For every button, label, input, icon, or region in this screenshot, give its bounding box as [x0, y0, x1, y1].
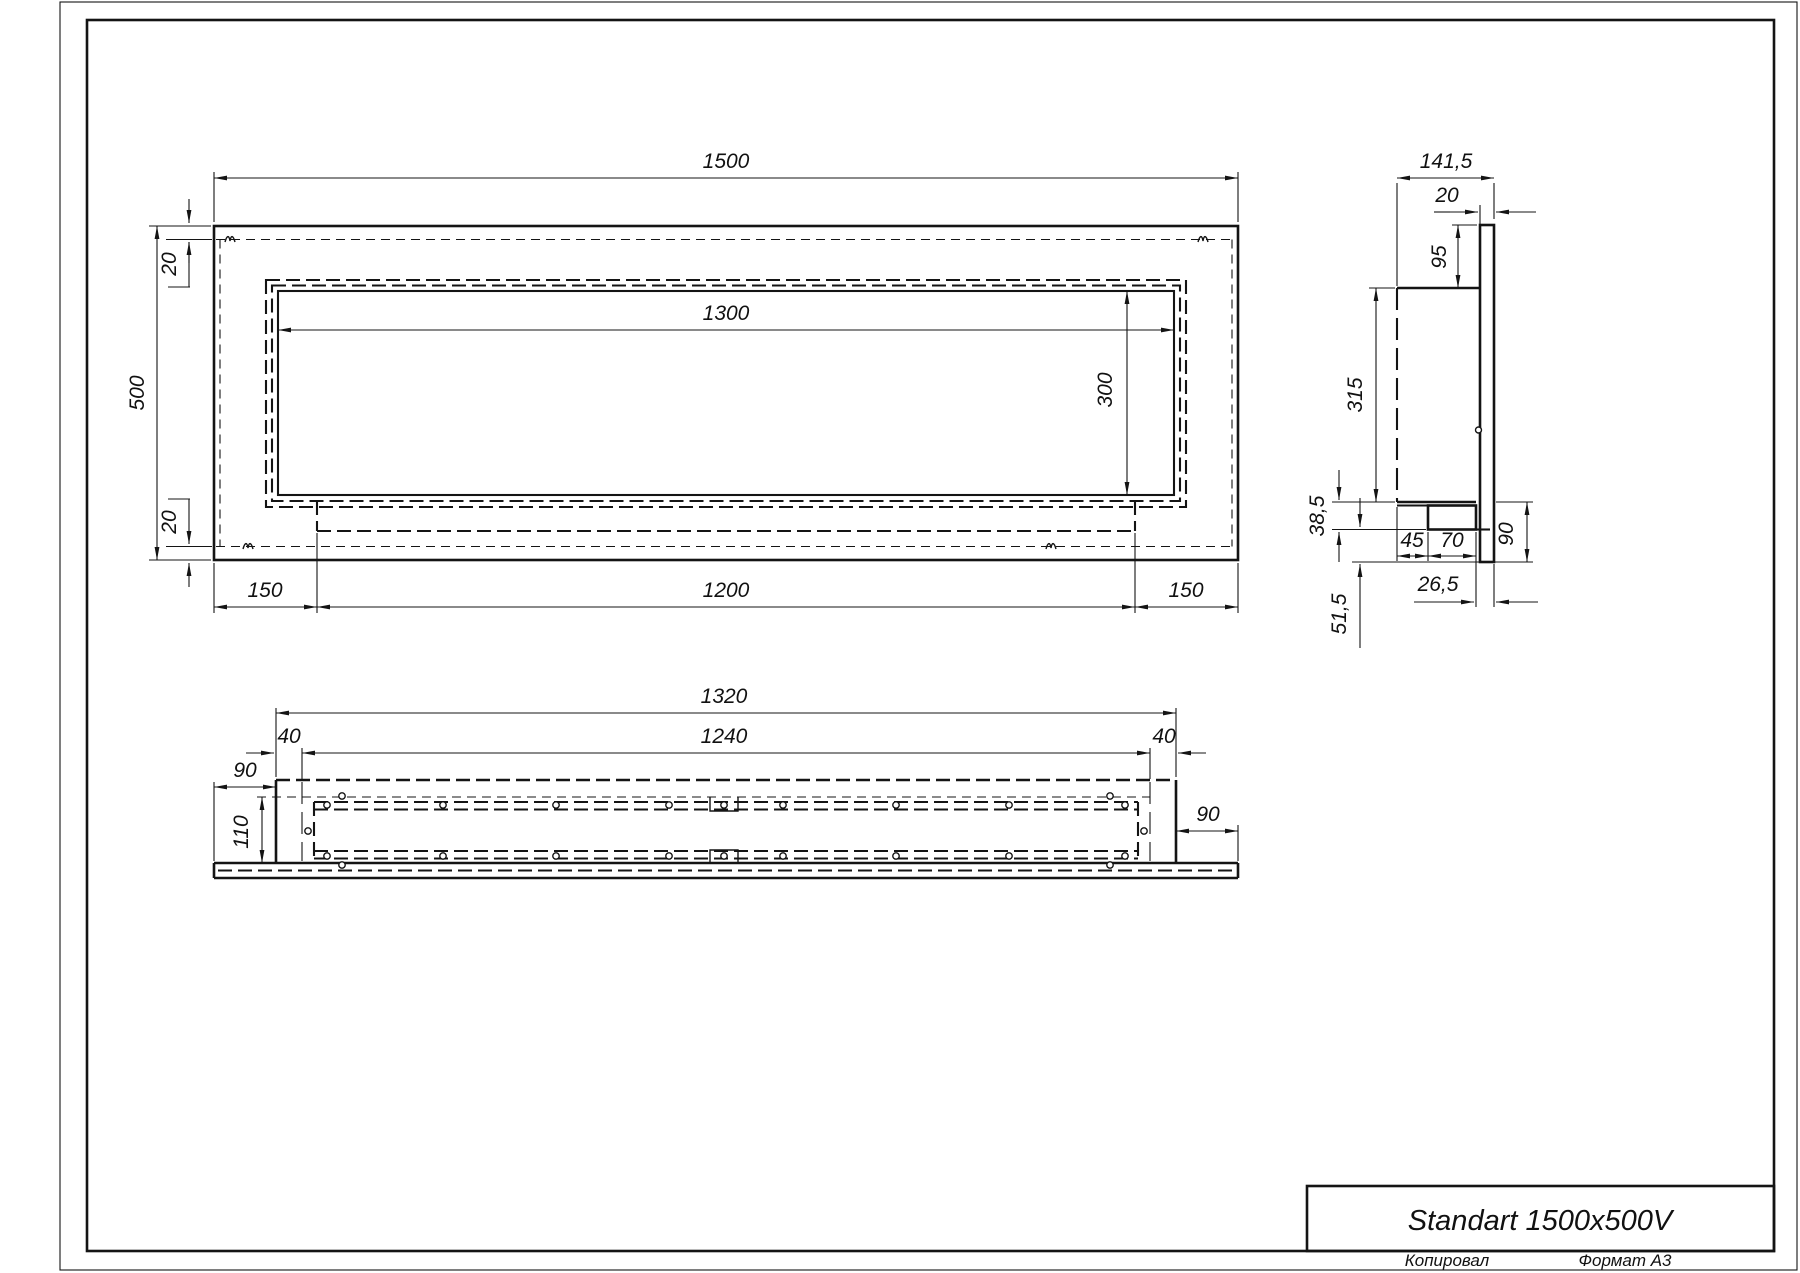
dim-front-opening-height: 300	[1094, 291, 1127, 495]
drawing-sheet: 1500 500 20 20 130	[0, 0, 1800, 1273]
weld-mark-icons	[225, 237, 1208, 549]
dim-front-edge-top: 20	[158, 199, 212, 287]
dim-label-overhang-right: 90	[1196, 803, 1220, 826]
dim-label-flange-left: 40	[277, 725, 301, 748]
dim-side-top-offset: 95	[1428, 225, 1477, 288]
dim-label-margin-right: 150	[1168, 579, 1203, 602]
drawing-frame	[87, 20, 1774, 1251]
drawing-canvas: 1500 500 20 20 130	[0, 0, 1800, 1273]
dim-label-flange-right: 40	[1152, 725, 1176, 748]
dim-label-channel-depth: 110	[230, 815, 253, 849]
weld-mark-icon	[1198, 237, 1208, 242]
weld-mark-icon	[1046, 544, 1056, 549]
dim-front-edge-bottom: 20	[158, 499, 212, 587]
dim-label-margin-left: 150	[247, 579, 282, 602]
bottom-front-plate	[214, 863, 1238, 878]
title-block: Standart 1500x500V Копировал Формат А3	[1307, 1186, 1774, 1270]
dim-bottom-overhang-right: 90	[1176, 803, 1238, 861]
dim-label-hidden-body-width: 1200	[703, 579, 750, 602]
dim-label-overhang-left: 90	[233, 759, 257, 782]
weld-mark-icon	[243, 544, 253, 549]
dim-label-opening-width: 1300	[703, 302, 750, 325]
dim-front-opening-width: 1300	[278, 302, 1174, 330]
dim-side-body-height: 315	[1344, 288, 1395, 502]
dim-front-bottom-row: 150 1200 150	[214, 533, 1238, 613]
dim-label-plate-thickness: 20	[1434, 184, 1459, 207]
bottom-holes	[305, 793, 1147, 868]
dim-label-front-edge-top: 20	[158, 252, 181, 277]
dim-label-front-width: 1500	[703, 150, 750, 173]
weld-mark-icon	[225, 237, 235, 242]
side-hole	[1476, 427, 1482, 433]
front-outer-body	[214, 226, 1238, 560]
dim-bottom-channel-depth: 110	[230, 797, 262, 863]
dim-side-bottom-overhang: 90	[1495, 502, 1533, 562]
bottom-view: 1320 1240 40 40 90 110 90	[214, 685, 1238, 878]
sheet-edge	[60, 2, 1797, 1270]
dim-label-bottom-lip: 51,5	[1328, 593, 1351, 634]
dim-label-foot-inset: 45	[1400, 529, 1424, 552]
side-front-plate	[1480, 225, 1494, 562]
side-view: 141,5 20 95 315 38,5	[1306, 150, 1538, 648]
dim-side-plate-thickness: 20	[1434, 184, 1536, 225]
front-hidden-tray	[317, 501, 1135, 531]
copied-by-label: Копировал	[1405, 1251, 1490, 1270]
dim-label-body-width: 1320	[701, 685, 748, 708]
bottom-slot	[257, 782, 1150, 864]
dim-front-overall-width: 1500	[214, 150, 1238, 222]
dim-label-body-height: 315	[1344, 377, 1367, 412]
dim-label-top-offset: 95	[1428, 245, 1451, 269]
page-frame	[60, 2, 1797, 1270]
front-view: 1500 500 20 20 130	[126, 150, 1238, 613]
drawing-title: Standart 1500x500V	[1408, 1205, 1675, 1237]
dim-label-opening-height: 300	[1094, 372, 1117, 407]
dim-label-slot-width: 1240	[701, 725, 748, 748]
dim-label-front-height: 500	[126, 375, 149, 410]
dim-label-front-edge-bottom: 20	[158, 510, 181, 535]
dim-label-foot-gap: 26,5	[1417, 573, 1459, 596]
dim-bottom-slot-width: 1240 40 40	[246, 725, 1206, 779]
dim-label-foot-height: 38,5	[1306, 495, 1329, 536]
dim-label-foot-depth: 70	[1440, 529, 1464, 552]
dim-label-bottom-overhang: 90	[1495, 522, 1518, 546]
side-foot-box	[1428, 506, 1476, 530]
dim-label-side-depth: 141,5	[1420, 150, 1473, 173]
format-label: Формат А3	[1578, 1251, 1672, 1270]
